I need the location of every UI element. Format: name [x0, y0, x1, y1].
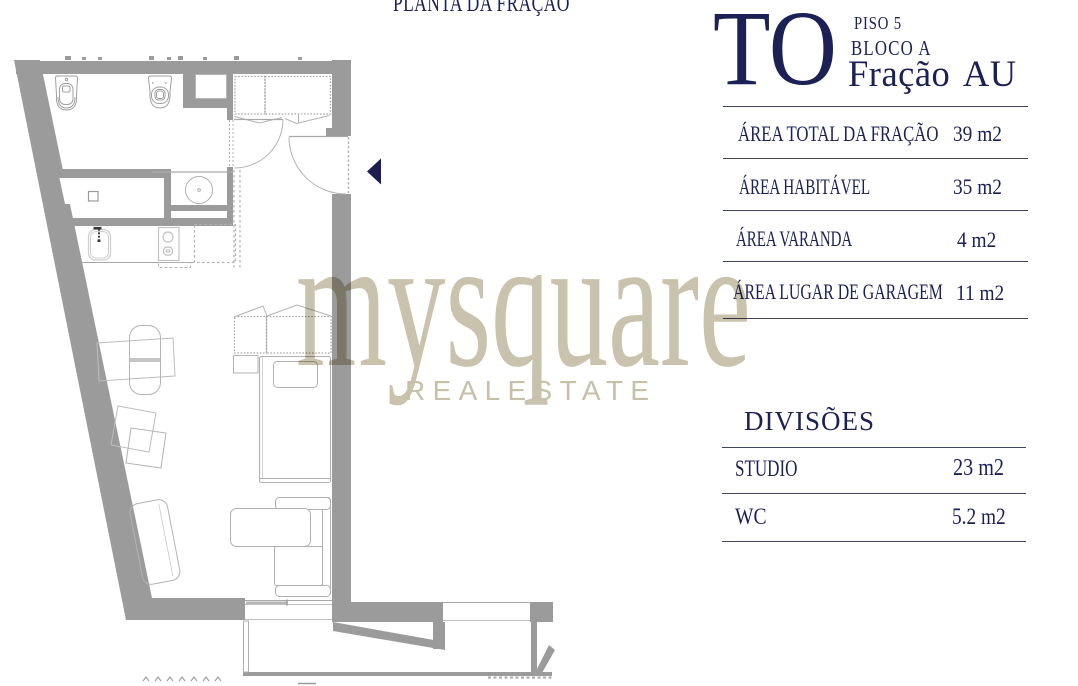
svg-text:REALESTATE: REALESTATE — [405, 375, 657, 406]
